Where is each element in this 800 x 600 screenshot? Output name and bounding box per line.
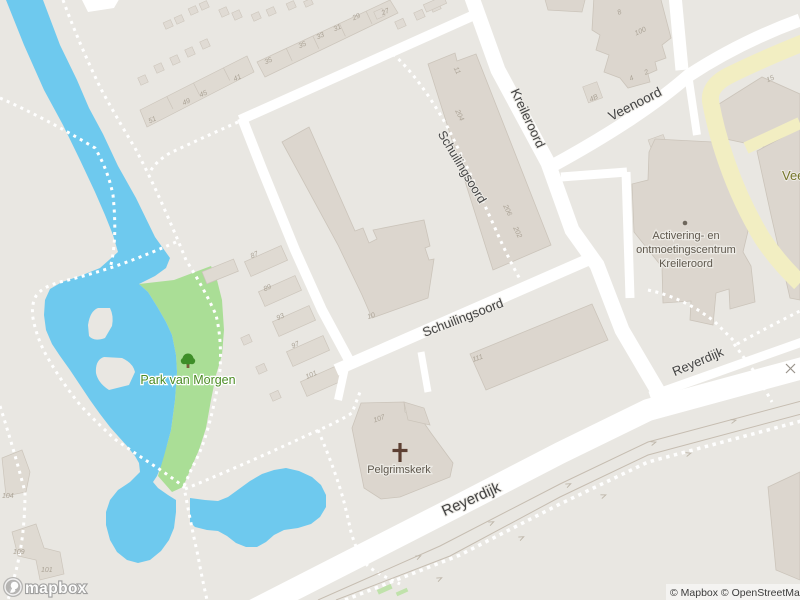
- svg-text:Park van Morgen: Park van Morgen: [140, 373, 235, 387]
- svg-text:mapbox: mapbox: [25, 580, 87, 597]
- svg-text:Pelgrimskerk: Pelgrimskerk: [367, 464, 431, 476]
- svg-text:101: 101: [41, 567, 53, 574]
- svg-text:104: 104: [2, 493, 14, 500]
- svg-text:109: 109: [13, 549, 25, 556]
- svg-text:© Mapbox © OpenStreetMap: © Mapbox © OpenStreetMap: [670, 587, 800, 599]
- svg-text:Kreileroord: Kreileroord: [659, 258, 713, 270]
- svg-text:ontmoetingscentrum: ontmoetingscentrum: [636, 244, 736, 256]
- svg-text:Vee: Vee: [782, 168, 800, 183]
- svg-text:Activering- en: Activering- en: [652, 230, 719, 242]
